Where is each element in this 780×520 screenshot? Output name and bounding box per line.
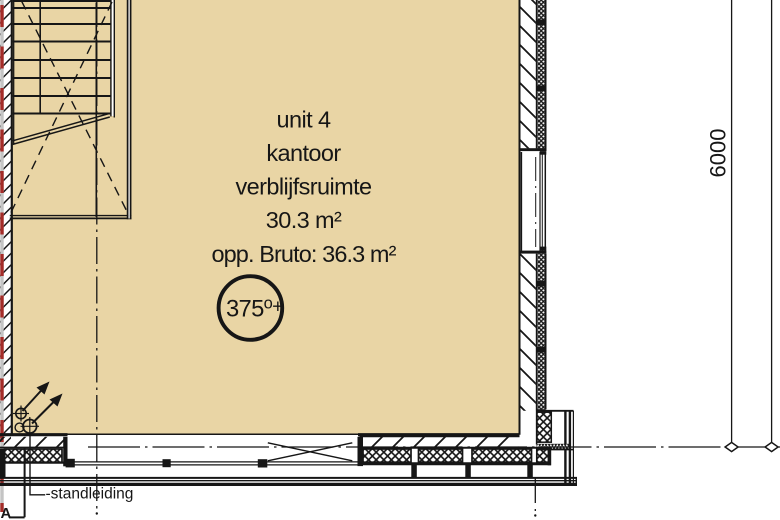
svg-text:unit 4: unit 4 <box>277 107 331 133</box>
svg-text:verblijfsruimte: verblijfsruimte <box>236 174 372 200</box>
svg-text:30.3 m²: 30.3 m² <box>266 207 342 233</box>
svg-text:opp. Bruto: 36.3 m²: opp. Bruto: 36.3 m² <box>211 241 396 267</box>
svg-text:-standleiding: -standleiding <box>46 486 134 503</box>
svg-text:A: A <box>1 505 12 520</box>
svg-text:kantoor: kantoor <box>266 140 341 166</box>
svg-text:6000: 6000 <box>706 129 731 178</box>
